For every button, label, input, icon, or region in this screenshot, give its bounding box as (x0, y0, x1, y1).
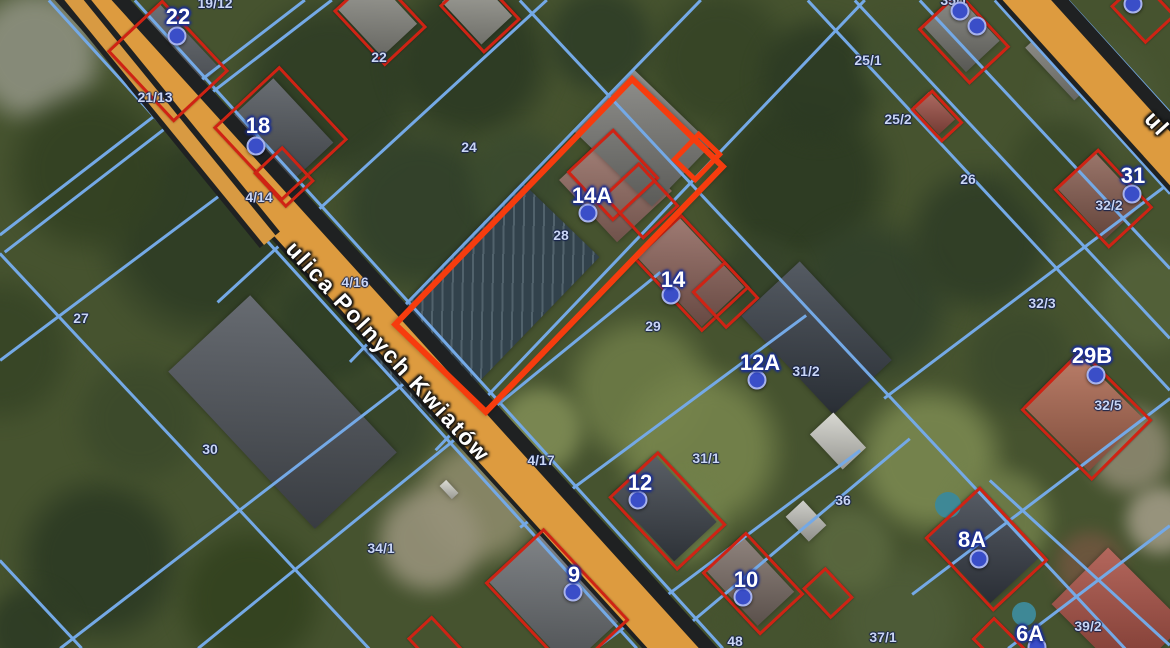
address-marker-dot[interactable] (1124, 0, 1143, 14)
address-label-31: 31 (1121, 163, 1145, 189)
address-label-8a: 8A (958, 527, 986, 553)
address-marker-dot[interactable] (968, 17, 987, 36)
address-label-14a: 14A (572, 183, 612, 209)
address-markers-layer: 221814A1412A129108A6A29B31 (0, 0, 1170, 648)
address-marker-dot-18[interactable] (247, 137, 266, 156)
address-marker-dot[interactable] (951, 2, 970, 21)
map-canvas[interactable]: ulica Polnych Kwiatówul19/122221/13244/1… (0, 0, 1170, 648)
address-label-10: 10 (734, 567, 758, 593)
address-label-6a: 6A (1016, 621, 1044, 647)
address-label-12: 12 (628, 470, 652, 496)
address-label-22: 22 (166, 4, 190, 30)
address-label-29b: 29B (1072, 343, 1112, 369)
address-label-14: 14 (661, 267, 685, 293)
address-label-18: 18 (246, 113, 270, 139)
address-label-12a: 12A (740, 350, 780, 376)
address-label-9: 9 (568, 562, 580, 588)
